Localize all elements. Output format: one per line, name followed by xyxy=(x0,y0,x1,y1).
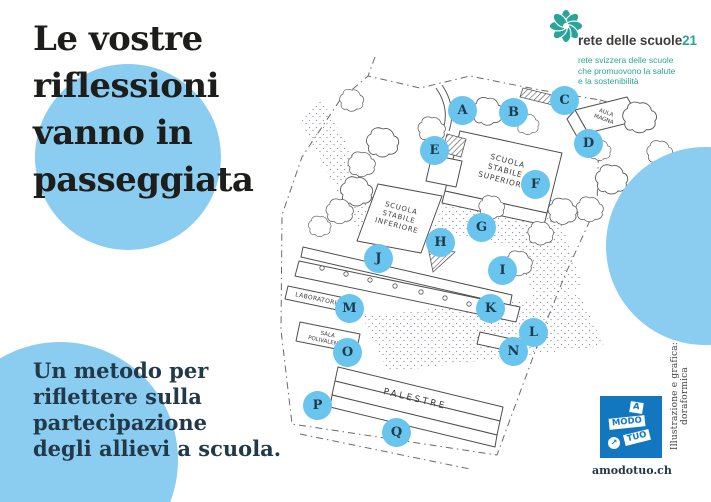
amodotuo-logo: A MODO TUO ↗ xyxy=(600,396,662,458)
map-marker-p: P xyxy=(303,391,332,420)
building-palestre xyxy=(330,367,503,447)
map-marker-k: K xyxy=(476,294,505,323)
brand-name: rete delle scuole xyxy=(578,33,682,48)
map-marker-i: I xyxy=(488,256,517,285)
map-marker-d: D xyxy=(574,129,603,158)
map-marker-n: N xyxy=(499,337,528,366)
poster: SCUOLA STABILE SUPERIORE SCUOLA STABILE … xyxy=(0,0,711,502)
map-marker-m: M xyxy=(335,294,364,323)
illustration-credit: Illustrazione e grafica: doraformica xyxy=(670,316,682,476)
map-marker-h: H xyxy=(426,228,455,257)
amodotuo-tag-modo: MODO xyxy=(609,415,646,430)
map-marker-e: E xyxy=(420,136,449,165)
map-marker-g: G xyxy=(467,213,496,242)
map-marker-c: C xyxy=(550,86,579,115)
brand-number: 21 xyxy=(682,33,697,48)
map-marker-j: J xyxy=(364,244,393,273)
brand-tagline: rete svizzera delle scuole che promuovon… xyxy=(578,55,675,87)
map-marker-f: F xyxy=(521,170,550,199)
brand-wordmark: rete delle scuole21 xyxy=(578,33,697,48)
amodotuo-arrow-icon: ↗ xyxy=(608,437,620,449)
map-marker-b: B xyxy=(499,98,528,127)
map-marker-q: Q xyxy=(382,418,411,447)
amodotuo-url[interactable]: amodotuo.ch xyxy=(592,464,670,477)
amodotuo-tag-tuo: TUO xyxy=(623,429,651,446)
page-title: Le vostre riflessioni vanno in passeggia… xyxy=(33,16,253,204)
amodotuo-tag-a: A xyxy=(629,401,643,414)
map-marker-a: A xyxy=(448,96,477,125)
intro-text: Un metodo per riflettere sulla partecipa… xyxy=(33,358,281,462)
map-marker-o: O xyxy=(333,338,362,367)
